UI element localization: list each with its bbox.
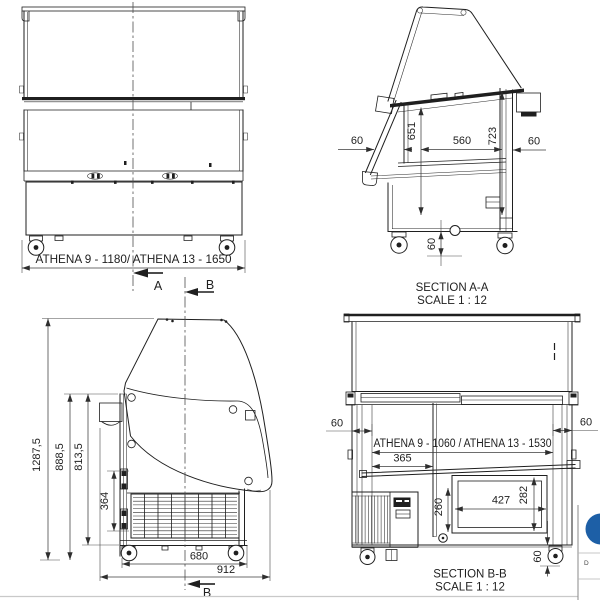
side-glass: [124, 319, 272, 492]
bb-caster-right: [548, 546, 563, 564]
bb-dim-left-wall: 60: [331, 418, 343, 430]
aa-caster-left: [391, 232, 407, 253]
cut-label-a: A: [154, 279, 163, 293]
clip-right: [163, 173, 178, 179]
aa-dim-right-gap: 60: [528, 136, 540, 148]
bb-dim-shelf-depth: 365: [393, 453, 411, 465]
clip-left: [88, 173, 103, 179]
cut-label-b-top: B: [206, 278, 214, 292]
section-bb-title: SECTION B-B: [433, 569, 507, 581]
compressor-unit: [352, 492, 418, 547]
bb-dim-inner-width: ATHENA 9 - 1060 / ATHENA 13 - 1530: [374, 438, 552, 450]
title-block-cell-label: D: [584, 560, 589, 567]
condenser-grille: [127, 493, 240, 538]
aa-dim-inner-width: 560: [453, 135, 471, 147]
open-lid: [388, 7, 521, 101]
side-view: 1287,5 888,5 813,5 364 680 912 B: [31, 277, 272, 600]
bb-caster-left: [360, 548, 375, 565]
sliding-lids: [346, 392, 578, 405]
cut-arrow-b-top: B: [185, 278, 214, 296]
technical-drawing-page: ATHENA 9 - 1180/ ATHENA 13 - 1650 A B: [0, 0, 600, 600]
front-view: ATHENA 9 - 1180/ ATHENA 13 - 1650 A B: [20, 2, 248, 296]
bb-dim-tub-width: 427: [492, 495, 510, 507]
aa-dim-front-height: 651: [406, 122, 418, 140]
section-aa-scale: SCALE 1 : 12: [417, 295, 487, 307]
aa-dim-back-height: 723: [487, 127, 499, 145]
bb-dim-well-depth: 260: [433, 498, 445, 516]
aa-dim-floor-clearance: 60: [426, 238, 438, 250]
side-caster-left: [121, 545, 137, 561]
bb-dim-floor-clearance: 60: [532, 550, 544, 562]
side-dim-inner-height: 813,5: [73, 443, 85, 471]
drain: [450, 226, 460, 236]
cut-arrow-a: A: [133, 269, 163, 294]
front-width-dim: ATHENA 9 - 1180/ ATHENA 13 - 1650: [36, 252, 232, 266]
side-dim-body-height: 888,5: [54, 443, 66, 471]
section-bb-scale: SCALE 1 : 12: [435, 582, 505, 594]
side-caster-right: [228, 545, 244, 561]
title-block-fragment: D: [0, 505, 600, 600]
rear-box-side: [100, 403, 123, 422]
rear-box: [517, 93, 541, 112]
company-logo: [586, 514, 600, 545]
section-bb-view: 60 60 ATHENA 9 - 1060 / ATHENA 13 - 1530…: [326, 314, 598, 594]
bb-dim-tub-height: 282: [518, 486, 530, 504]
side-dim-base-depth: 680: [190, 551, 208, 563]
aa-dim-left-gap: 60: [351, 135, 363, 147]
bb-dim-right-wall: 60: [580, 417, 592, 429]
side-dim-bracket-span: 364: [99, 492, 111, 510]
section-aa-title: SECTION A-A: [416, 282, 489, 294]
deck-edge: [22, 97, 245, 100]
drawing-canvas: ATHENA 9 - 1180/ ATHENA 13 - 1650 A B: [0, 0, 600, 600]
side-dim-total-depth: 912: [217, 564, 235, 576]
section-aa-view: 60 651 560 723 60 60 SECTION A-A SCALE 1…: [338, 7, 546, 307]
aa-caster-right: [497, 233, 513, 254]
side-dim-total-height: 1287,5: [31, 438, 43, 472]
junction-box: [486, 197, 500, 208]
front-glass-section: [362, 96, 401, 186]
cut-label-b-bottom: B: [203, 586, 211, 600]
